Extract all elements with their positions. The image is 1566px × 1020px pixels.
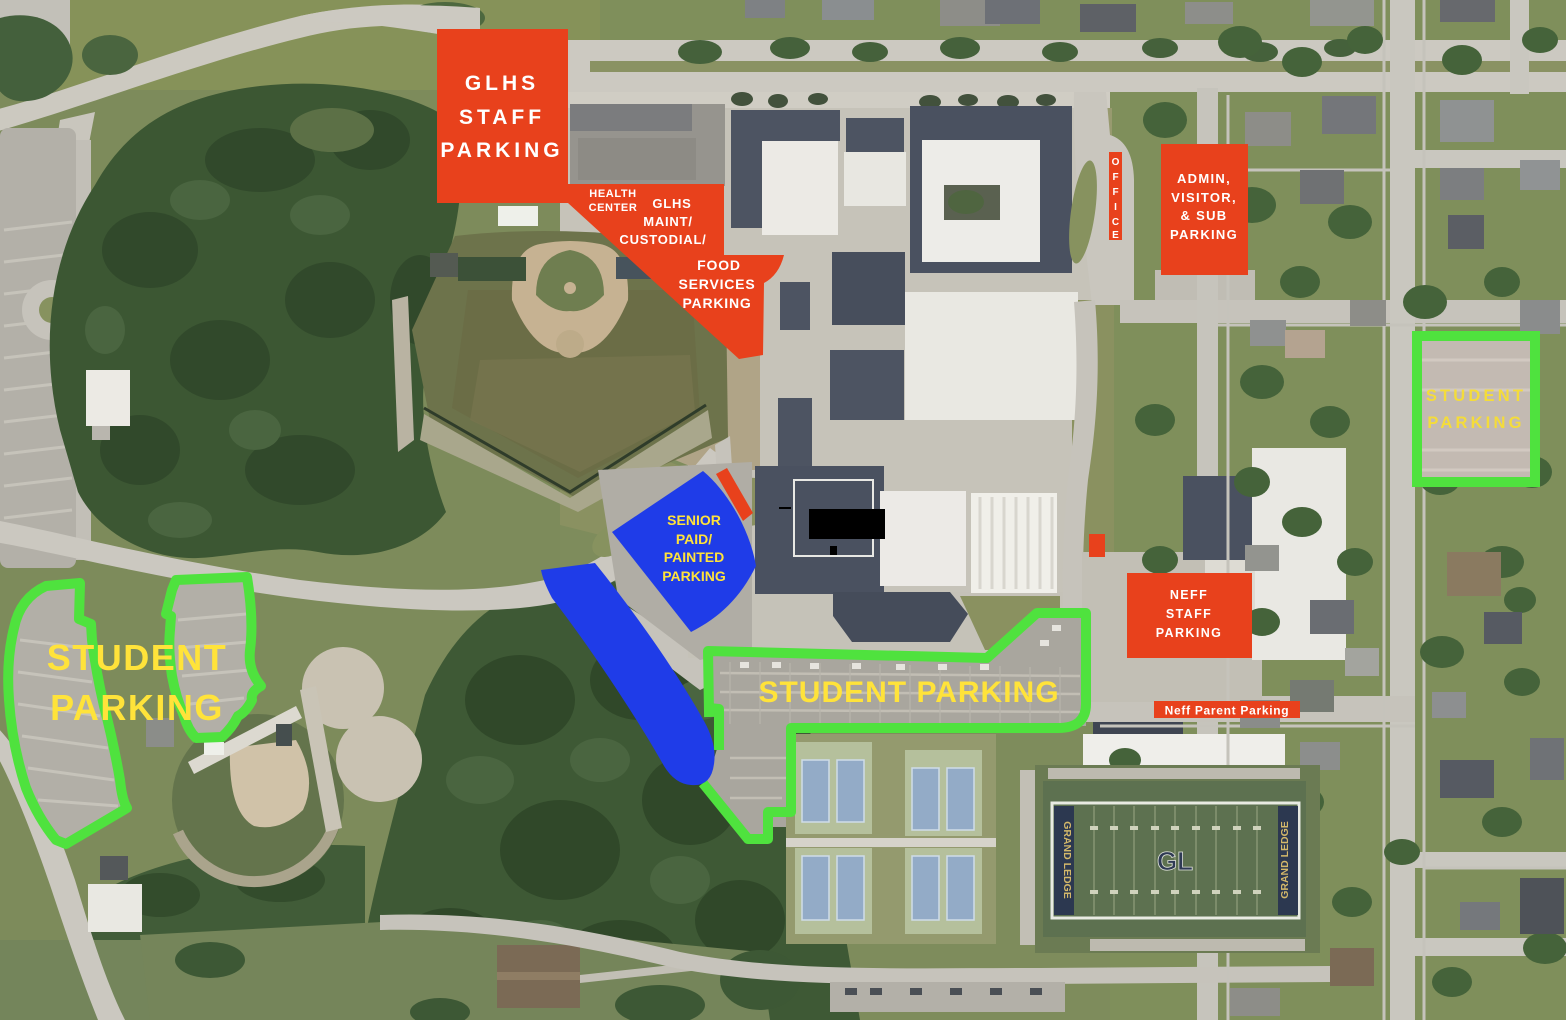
svg-text:C: C: [1112, 217, 1119, 228]
svg-text:I: I: [1114, 202, 1117, 213]
svg-text:STUDENT: STUDENT: [47, 637, 228, 678]
svg-text:& SUB: & SUB: [1181, 208, 1228, 223]
svg-text:Neff Parent Parking: Neff Parent Parking: [1165, 704, 1290, 718]
svg-text:STUDENT: STUDENT: [1426, 387, 1526, 405]
svg-text:PARKING: PARKING: [440, 139, 563, 162]
svg-text:CUSTODIAL/: CUSTODIAL/: [619, 232, 706, 247]
svg-text:STUDENT PARKING: STUDENT PARKING: [758, 676, 1059, 709]
svg-text:PARKING: PARKING: [1156, 626, 1223, 640]
svg-text:PAINTED: PAINTED: [664, 549, 724, 565]
svg-text:SERVICES: SERVICES: [679, 276, 756, 292]
svg-text:GRAND LEDGE: GRAND LEDGE: [1279, 821, 1291, 899]
svg-text:STAFF: STAFF: [1166, 607, 1212, 621]
svg-text:FOOD: FOOD: [697, 257, 741, 273]
svg-text:CENTER: CENTER: [589, 202, 638, 214]
svg-text:NEFF: NEFF: [1170, 588, 1208, 602]
svg-text:MAINT/: MAINT/: [643, 214, 693, 229]
svg-text:GL: GL: [1157, 846, 1193, 876]
svg-text:F: F: [1112, 187, 1118, 198]
svg-text:PARKING: PARKING: [1427, 414, 1524, 432]
svg-text:F: F: [1112, 172, 1118, 183]
svg-text:GLHS: GLHS: [465, 72, 539, 95]
svg-text:STAFF: STAFF: [459, 106, 545, 129]
svg-text:ADMIN,: ADMIN,: [1177, 171, 1231, 186]
svg-text:PARKING: PARKING: [682, 295, 751, 311]
svg-text:PARKING: PARKING: [50, 687, 224, 728]
svg-text:E: E: [1112, 230, 1119, 241]
svg-text:VISITOR,: VISITOR,: [1171, 190, 1237, 205]
svg-text:SENIOR: SENIOR: [667, 512, 721, 528]
svg-text:HEALTH: HEALTH: [589, 188, 636, 200]
svg-text:O: O: [1112, 157, 1120, 168]
svg-text:PARKING: PARKING: [662, 568, 726, 584]
svg-text:GLHS: GLHS: [652, 196, 691, 211]
svg-text:PARKING: PARKING: [1170, 227, 1238, 242]
svg-text:GRAND LEDGE: GRAND LEDGE: [1061, 821, 1073, 899]
svg-text:PAID/: PAID/: [676, 531, 712, 547]
